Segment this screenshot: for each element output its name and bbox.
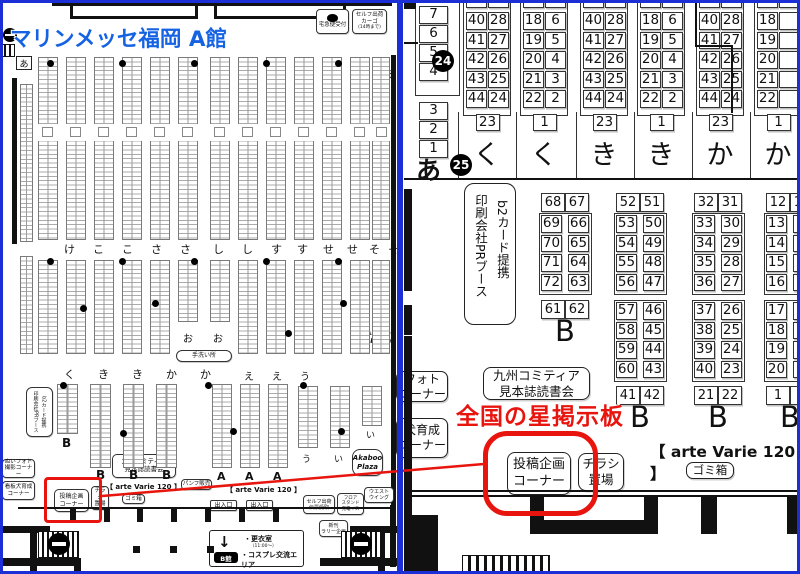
wall-pillar [273, 509, 279, 522]
booth-cell: 30 [721, 215, 742, 233]
booth-cell: 27 [605, 32, 626, 50]
booth-cell: 54 [616, 235, 637, 253]
nui-line2: 撮影コーナー [3, 465, 34, 478]
booth-cell: 17 [766, 302, 787, 320]
booth-cell: 66 [568, 215, 589, 233]
wall [695, 0, 697, 46]
badge-dot [335, 258, 342, 265]
booth-cell [376, 127, 387, 137]
b-block-label: B [129, 468, 138, 482]
booth-cell [793, 235, 800, 253]
booth-cell: 43 [643, 361, 664, 379]
booth-cell: 42 [583, 51, 604, 69]
booth-cell: 35 [694, 254, 715, 272]
wall [404, 515, 438, 574]
pr-booth-box-right: 印刷会社PRブース b2カード提携 [464, 183, 516, 325]
booth-cell [793, 254, 800, 272]
badge-dot [120, 430, 127, 437]
badge-dot [205, 382, 212, 389]
booth-cell: 56 [616, 274, 637, 292]
dog-corner-box: 看板犬育成 コーナー [2, 481, 35, 500]
row-label: か [754, 134, 800, 170]
wall [695, 45, 733, 47]
booth-cell: 39 [699, 0, 720, 8]
booth-cell: 69 [541, 215, 562, 233]
booth-strip [212, 384, 232, 468]
booth-cell: 40 [699, 12, 720, 30]
akaboo2-line1: Akaboo [353, 454, 382, 462]
booth-cell [126, 127, 137, 137]
row-label: し [242, 241, 253, 257]
wall-pillar [207, 546, 214, 553]
booth-cell: 70 [541, 235, 562, 253]
a-block-label: A [245, 470, 254, 483]
row-label: お [183, 330, 193, 345]
a-block-label: A [217, 470, 226, 483]
booth-cell: 1 [650, 114, 674, 131]
booth-cell [354, 127, 365, 137]
booth-cell [298, 127, 309, 137]
booth-cell: 50 [643, 215, 664, 233]
booth-strip [38, 57, 58, 240]
row-label: い [334, 452, 343, 465]
pr-line2: b2カード提携 [41, 396, 47, 427]
booth-cell: 22 [640, 90, 661, 108]
booth-strip [122, 57, 142, 240]
booth-cell: 58 [616, 322, 637, 340]
booth-strip [38, 260, 58, 354]
booth-cell: 7 [545, 0, 566, 8]
booth-cell: 19 [523, 32, 544, 50]
booth-cell: 26 [605, 51, 626, 69]
booth-cell: 3 [662, 71, 683, 89]
booth-cell: 18 [757, 12, 778, 30]
venue-map-screenshot: マリンメッセ福岡 A館 宅急便受付 セルフ出荷 カーゴ (14時まで) あ あ … [0, 0, 800, 574]
booth-strip [156, 384, 177, 468]
highlight-rect-right [483, 431, 598, 516]
booth-strip [123, 384, 144, 468]
booth-cell [270, 127, 281, 137]
booth-cell [98, 127, 109, 137]
booth-cell: 37 [694, 302, 715, 320]
booth-cell: 16 [766, 274, 787, 292]
row-label: す [271, 241, 282, 257]
booth-strip [350, 57, 370, 240]
booth-strip [266, 260, 286, 354]
wall [787, 496, 800, 534]
wall-pillar [170, 546, 177, 553]
booth-cell: 4 [545, 51, 566, 69]
booth-cell: 43 [466, 71, 487, 89]
booth-cell [779, 12, 800, 30]
wall-pillar [239, 509, 245, 522]
cargo-line1: セルフ出荷 [356, 12, 384, 19]
booth-cell: 21 [523, 71, 544, 89]
band-separator [516, 112, 517, 180]
cargo-note: (14時まで) [358, 25, 381, 30]
booth-cell: 53 [616, 215, 637, 233]
booth-strip [66, 57, 86, 240]
booth-strip [238, 260, 258, 354]
row-label: き [580, 134, 628, 170]
booth-strip [122, 260, 142, 354]
badge-dot [338, 428, 345, 435]
booth-cell: 20 [757, 51, 778, 69]
b-group-header: 6867 [541, 193, 589, 210]
row-label: お [213, 330, 223, 345]
booth-cell: 6 [545, 12, 566, 30]
cat-icon [327, 14, 338, 22]
booth-cell: 71 [541, 254, 562, 272]
pr-booth-line1: 印刷会社PRブース [471, 194, 490, 298]
booth-cell: 29 [721, 0, 742, 8]
booth-cell: 7 [662, 0, 683, 8]
booth-cell: 19 [757, 32, 778, 50]
row-label: し [213, 241, 224, 257]
badge-dot [300, 382, 307, 389]
booth-cell: 72 [541, 274, 562, 292]
band-separator [692, 112, 693, 180]
booth-cell [779, 90, 800, 108]
booth-cell: 24 [605, 90, 626, 108]
booth-cell: 29 [488, 0, 509, 8]
booth-strip [150, 260, 170, 354]
booth-cell: 38 [694, 322, 715, 340]
booth-cell: 5 [662, 32, 683, 50]
badge-25: 25 [450, 154, 472, 176]
booth-cell: 25 [605, 71, 626, 89]
badge-dot [191, 60, 198, 67]
b-block-label: B [162, 468, 171, 482]
badge-dot [263, 258, 270, 265]
booth-cell: 44 [466, 90, 487, 108]
booth-cell: 64 [568, 254, 589, 272]
b-kan-badge: B館 [214, 552, 238, 563]
booth-cell [793, 215, 800, 233]
booth-cell [779, 32, 800, 50]
booth-strip [362, 386, 382, 426]
booth-cell [214, 127, 225, 137]
booth-cell: 43 [583, 71, 604, 89]
booth-strip [150, 57, 170, 240]
booth-cell: 31 [718, 193, 742, 212]
badge-dot [340, 300, 347, 307]
wall [530, 520, 658, 534]
booth-strip [20, 84, 33, 242]
booth-strip [294, 57, 314, 240]
badge-dot [335, 60, 342, 67]
booth-cell: 24 [488, 90, 509, 108]
booth-cell: 26 [721, 302, 742, 320]
pr-booth-line2: b2カード提携 [493, 200, 512, 278]
row-label: か [200, 366, 211, 382]
booth-cell: 39 [694, 341, 715, 359]
board-title: 全国の星掲示板 [456, 397, 624, 431]
booth-strip [94, 260, 114, 354]
booth-cell: 41 [583, 32, 604, 50]
wall [731, 45, 733, 113]
wall [0, 558, 80, 566]
booth-cell [42, 127, 53, 137]
wall [404, 495, 800, 497]
booth-cell: 2 [545, 90, 566, 108]
west-wing-box: ウエスト ウイング [364, 487, 394, 503]
b-group-header: 1211 [766, 193, 800, 210]
row-label: け [64, 241, 75, 257]
row-label: さ [151, 241, 162, 257]
wall [404, 189, 412, 291]
booth-cell [793, 274, 800, 292]
booth-cell: 68 [541, 193, 565, 212]
booth-strip [266, 57, 286, 240]
booth-strip [90, 384, 111, 468]
arte-varie-label-1: 【 arte Varie 120 】 [106, 482, 181, 492]
booth-cell: 11 [790, 193, 800, 212]
row-label: こ [122, 241, 133, 257]
booth-cell: 21 [640, 71, 661, 89]
booth-cell: 2 [419, 121, 448, 139]
booth-cell: 18 [523, 12, 544, 30]
booth-cell: 29 [721, 235, 742, 253]
exit-box-2: 出入口 [246, 500, 273, 511]
changing-line2: ・コスプレ交流エリア [241, 550, 303, 570]
booth-cell: 4 [662, 51, 683, 69]
booth-cell: 28 [488, 12, 509, 30]
booth-cell: 17 [640, 0, 661, 8]
booth-cell: 46 [643, 302, 664, 320]
booth-cell: 19 [640, 32, 661, 50]
booth-cell: 48 [643, 254, 664, 272]
wall [74, 558, 81, 574]
badge-dot [119, 60, 126, 67]
row-a-right-panel: あ [416, 151, 441, 187]
booth-strip [240, 384, 260, 468]
booth-cell: 6 [662, 12, 683, 30]
row-label: か [696, 134, 744, 170]
wall-pillar [205, 509, 211, 522]
wall-left [12, 78, 17, 244]
hall-title: マリンメッセ福岡 A館 [10, 22, 227, 53]
booth-cell: 59 [616, 341, 637, 359]
booth-cell: 23 [709, 114, 733, 131]
booth-cell: 22 [757, 90, 778, 108]
band-separator [634, 112, 635, 180]
wall [320, 558, 398, 566]
booth-cell: 17 [523, 0, 544, 8]
booth-cell: 15 [766, 254, 787, 272]
row-label: き [98, 366, 109, 382]
booth-cell [793, 341, 800, 359]
booth-cell: 18 [640, 12, 661, 30]
gomibako-box-right: ゴミ箱 [686, 462, 734, 479]
badge-24: 24 [432, 50, 454, 72]
band-separator [576, 112, 577, 180]
booth-cell: 3 [545, 71, 566, 89]
wall-pillar [171, 509, 177, 522]
row-label: え [272, 368, 282, 383]
booth-cell: 52 [616, 193, 640, 212]
badge-dot [152, 300, 159, 307]
booth-cell: 3 [419, 102, 448, 120]
nui-photo-corner-box: ぬいフォト 撮影コーナー [2, 459, 35, 478]
booth-cell [70, 127, 81, 137]
booth-cell [793, 361, 800, 379]
booth-cell: 5 [545, 32, 566, 50]
panel-divider [397, 0, 403, 574]
booth-cell: 17 [757, 0, 778, 8]
dog-line1: 看板犬育成 [5, 484, 33, 491]
west-wing-line2: ウイング [369, 495, 389, 501]
row-label: せ [347, 241, 358, 257]
row-label: く [64, 366, 75, 382]
stairs-icon [462, 555, 550, 574]
badge-dot [285, 330, 292, 337]
booth-cell: 7 [419, 6, 448, 24]
badge-dot [119, 258, 126, 265]
booth-cell: 28 [605, 12, 626, 30]
gomibako-box-left: ゴミ箱 [122, 494, 145, 504]
row-label: く [520, 134, 568, 170]
row-label: き [637, 134, 685, 170]
wall-pillar [133, 546, 140, 553]
wall-under-rows [404, 178, 800, 180]
band-separator [750, 112, 751, 180]
self-denpyo-box: セルフ出荷 伝票受取 [303, 495, 335, 514]
row-label: そ [369, 241, 380, 257]
booth-cell: 60 [616, 361, 637, 379]
row-label: き [132, 366, 143, 382]
b-group-header: 3231 [694, 193, 742, 210]
down-arrow-icon: ↓ [218, 533, 231, 551]
booth-cell: 2 [662, 90, 683, 108]
booth-strip [210, 57, 230, 240]
b-group-header: 5251 [616, 193, 664, 210]
booth-cell: 24 [721, 341, 742, 359]
booth-cell: 29 [605, 0, 626, 8]
akaboo-plaza-box: Akaboo Plaza [352, 449, 383, 476]
booth-cell: 20 [640, 51, 661, 69]
booth-cell: 28 [721, 254, 742, 272]
stage-area-left [70, 3, 198, 19]
booth-cell: 33 [694, 215, 715, 233]
row-label: う [300, 368, 310, 383]
booth-cell: 28 [721, 12, 742, 30]
booth-cell: 43 [699, 71, 720, 89]
exit-box-1: 出入口 [210, 500, 237, 511]
no-entry-icon [48, 533, 70, 555]
b-block-label: B [541, 318, 589, 344]
booth-cell: 42 [699, 51, 720, 69]
wall [404, 305, 412, 335]
booth-cell: 23 [476, 114, 500, 131]
wall [404, 336, 412, 516]
wall [404, 42, 418, 44]
badge-dot [47, 60, 54, 67]
booth-cell [779, 0, 800, 8]
changing-note: （11:00～） [250, 543, 276, 549]
booth-cell: 36 [694, 274, 715, 292]
booth-cell: 18 [766, 322, 787, 340]
no-entry-icon [350, 533, 372, 555]
changing-room-box: ↓ B館 ・更衣室 （11:00～） ・コスプレ交流エリア [209, 530, 304, 567]
floor-stand-box: フロア スタンド 充電イス [337, 493, 364, 515]
pamph-box: パンフ販売 [181, 479, 212, 490]
a-block-label: A [273, 470, 282, 483]
b-block-label: B [766, 404, 800, 430]
row-label: こ [93, 241, 104, 257]
arte-varie-label-2: 【 arte Varie 120 】 [226, 485, 301, 495]
wall-pillar [104, 509, 110, 522]
booth-strip [94, 57, 114, 240]
takkyubin-box: 宅急便受付 [316, 9, 349, 34]
booth-cell: 67 [565, 193, 589, 212]
booth-cell: 57 [616, 302, 637, 320]
booth-cell: 13 [766, 215, 787, 233]
wall [30, 526, 37, 574]
booth-cell: 41 [466, 32, 487, 50]
tearai-box: 手洗い所 [176, 350, 232, 362]
booth-cell [182, 127, 193, 137]
booth-cell: 25 [721, 322, 742, 340]
booth-cell: 40 [694, 361, 715, 379]
booth-cell: 27 [721, 274, 742, 292]
booth-cell: 44 [643, 341, 664, 359]
booth-cell: 39 [583, 0, 604, 8]
booth-cell: 45 [643, 322, 664, 340]
badge-dot [80, 305, 87, 312]
booth-strip [372, 57, 390, 240]
row-label: せ [323, 241, 334, 257]
booth-cell: 6 [419, 25, 448, 43]
booth-strip [210, 260, 230, 322]
row-a-left-box: あ [16, 56, 32, 70]
booth-cell: 44 [699, 90, 720, 108]
booth-strip [294, 260, 314, 354]
row-label: い [366, 428, 375, 441]
booth-cell: 22 [523, 90, 544, 108]
booth-cell: 44 [583, 90, 604, 108]
badge-dot [47, 258, 54, 265]
booth-cell: 40 [583, 12, 604, 30]
booth-strip [178, 260, 198, 322]
booth-cell: 32 [694, 193, 718, 212]
kyushu-r-line1: 九州コミティア [493, 368, 580, 384]
booth-strip [330, 386, 350, 448]
b-block-label: B [62, 436, 71, 450]
row-label: う [302, 452, 311, 465]
booth-strip [372, 260, 390, 354]
booth-cell: 49 [643, 235, 664, 253]
booth-strip [322, 260, 342, 354]
booth-cell: 39 [466, 0, 487, 8]
booth-cell: 14 [766, 235, 787, 253]
booth-cell [793, 322, 800, 340]
wall [644, 496, 658, 534]
booth-cell [779, 71, 800, 89]
row-label: え [244, 368, 254, 383]
wall [404, 0, 416, 9]
badge-dot [191, 258, 198, 265]
booth-cell: 47 [643, 274, 664, 292]
row-label: さ [180, 241, 191, 257]
booth-strip [178, 57, 198, 240]
booth-strip [322, 57, 342, 240]
booth-strip [20, 256, 33, 354]
booth-cell [793, 302, 800, 320]
booth-strip [268, 384, 288, 468]
booth-cell: 1 [767, 114, 791, 131]
booth-cell [326, 127, 337, 137]
